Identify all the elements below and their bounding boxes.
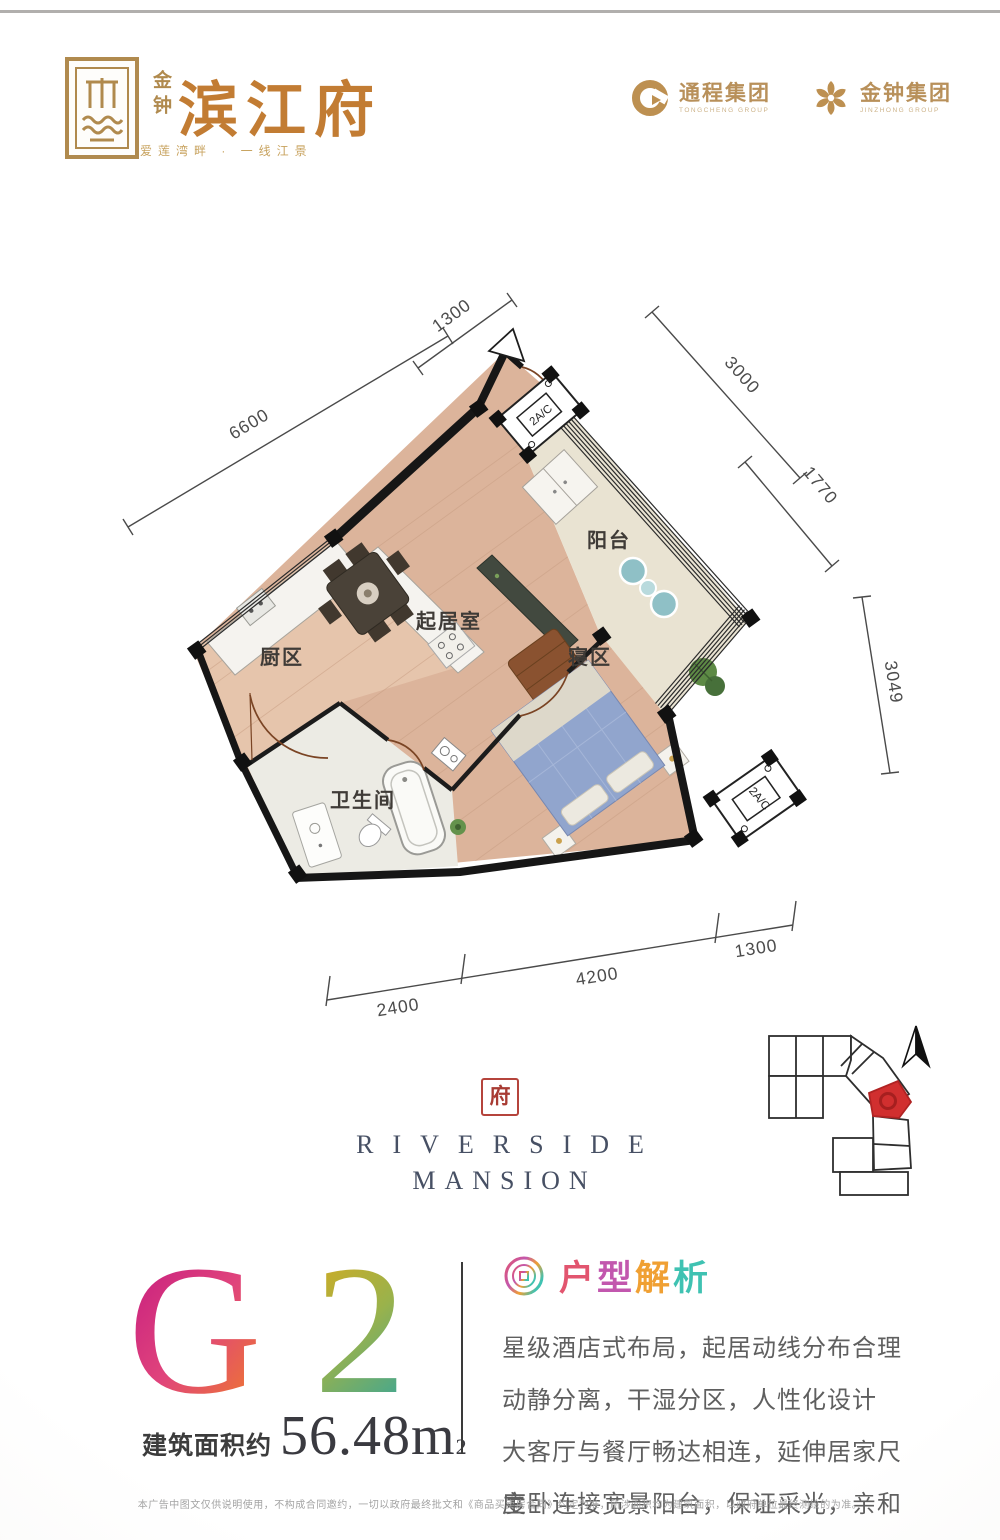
ornament-coin-icon — [502, 1254, 546, 1298]
dim-label: 1300 — [428, 294, 474, 335]
analysis-title-char: 解 — [635, 1259, 673, 1298]
analysis-header: 户型解析 — [502, 1250, 922, 1301]
unit-analysis: 户型解析 星级酒店式布局，起居动线分布合理 动静分离，干湿分区，人性化设计 大客… — [502, 1250, 922, 1531]
room-label-kitchen: 厨区 — [260, 647, 304, 669]
analysis-title-char: 析 — [673, 1259, 711, 1298]
area-label: 建筑面积约 — [142, 1426, 272, 1462]
dim-label: 6600 — [225, 404, 272, 443]
flyer-page: 金钟 滨江府 爱莲湾畔 · 一线江景 通程集团 TONGCHENG GROUP — [0, 0, 1000, 1540]
dim-label: 3000 — [721, 352, 765, 397]
room-label-living: 起居室 — [415, 609, 482, 633]
area-value: 56.48m — [280, 1404, 456, 1468]
analysis-line: 动静分离，干湿分区，人性化设计 — [502, 1375, 922, 1427]
red-seal-icon: 府 — [481, 1078, 519, 1116]
analysis-title: 户型解析 — [559, 1250, 711, 1301]
dim-label: 2400 — [375, 994, 421, 1020]
entry-arrow-icon — [489, 329, 524, 361]
room-label-sleeping: 寝区 — [568, 645, 612, 669]
analysis-line: 大客厅与餐厅畅达相连，延伸居家尺度 — [502, 1427, 922, 1479]
dim-label: 4200 — [574, 963, 620, 989]
unit-code-letter: G — [128, 1240, 262, 1420]
dim-label: 1300 — [733, 935, 779, 961]
room-label-balcony: 阳台 — [587, 528, 631, 552]
dim-label: 1770 — [799, 462, 842, 508]
unit-code-digit: 2 — [314, 1240, 407, 1420]
analysis-title-char: 户 — [559, 1259, 597, 1298]
room-label-bathroom: 卫生间 — [330, 789, 396, 812]
legal-disclaimer: 本广告中图文仅供说明使用，不构成合同邀约，一切以政府最终批文和《商品买卖房合同》… — [0, 1496, 1000, 1511]
dim-label: 3049 — [881, 659, 907, 705]
ac-platform-right: 2A/C — [703, 749, 807, 848]
unit-code: G 2 — [128, 1240, 468, 1420]
unit-area: 建筑面积约 56.48m 2 — [142, 1404, 467, 1468]
vertical-divider — [461, 1262, 463, 1454]
brand-mark: 府 RIVERSIDE MANSION — [0, 1078, 1000, 1196]
brand-mark-line2: MANSION — [0, 1166, 1000, 1196]
analysis-line: 星级酒店式布局，起居动线分布合理 — [502, 1323, 922, 1375]
analysis-title-char: 型 — [597, 1259, 635, 1298]
north-arrow-icon — [903, 1026, 929, 1066]
brand-mark-line1: RIVERSIDE — [0, 1130, 1000, 1160]
